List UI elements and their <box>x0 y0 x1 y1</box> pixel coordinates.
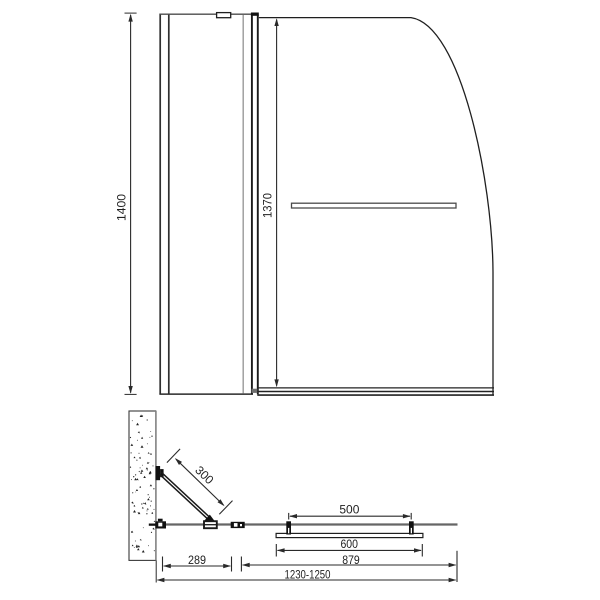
svg-text:879: 879 <box>342 553 360 567</box>
svg-text:600: 600 <box>340 537 358 551</box>
svg-text:500: 500 <box>339 503 359 517</box>
svg-text:1370: 1370 <box>261 193 275 218</box>
svg-text:289: 289 <box>188 553 206 567</box>
svg-text:1400: 1400 <box>114 194 128 221</box>
svg-text:1230-1250: 1230-1250 <box>285 567 331 581</box>
